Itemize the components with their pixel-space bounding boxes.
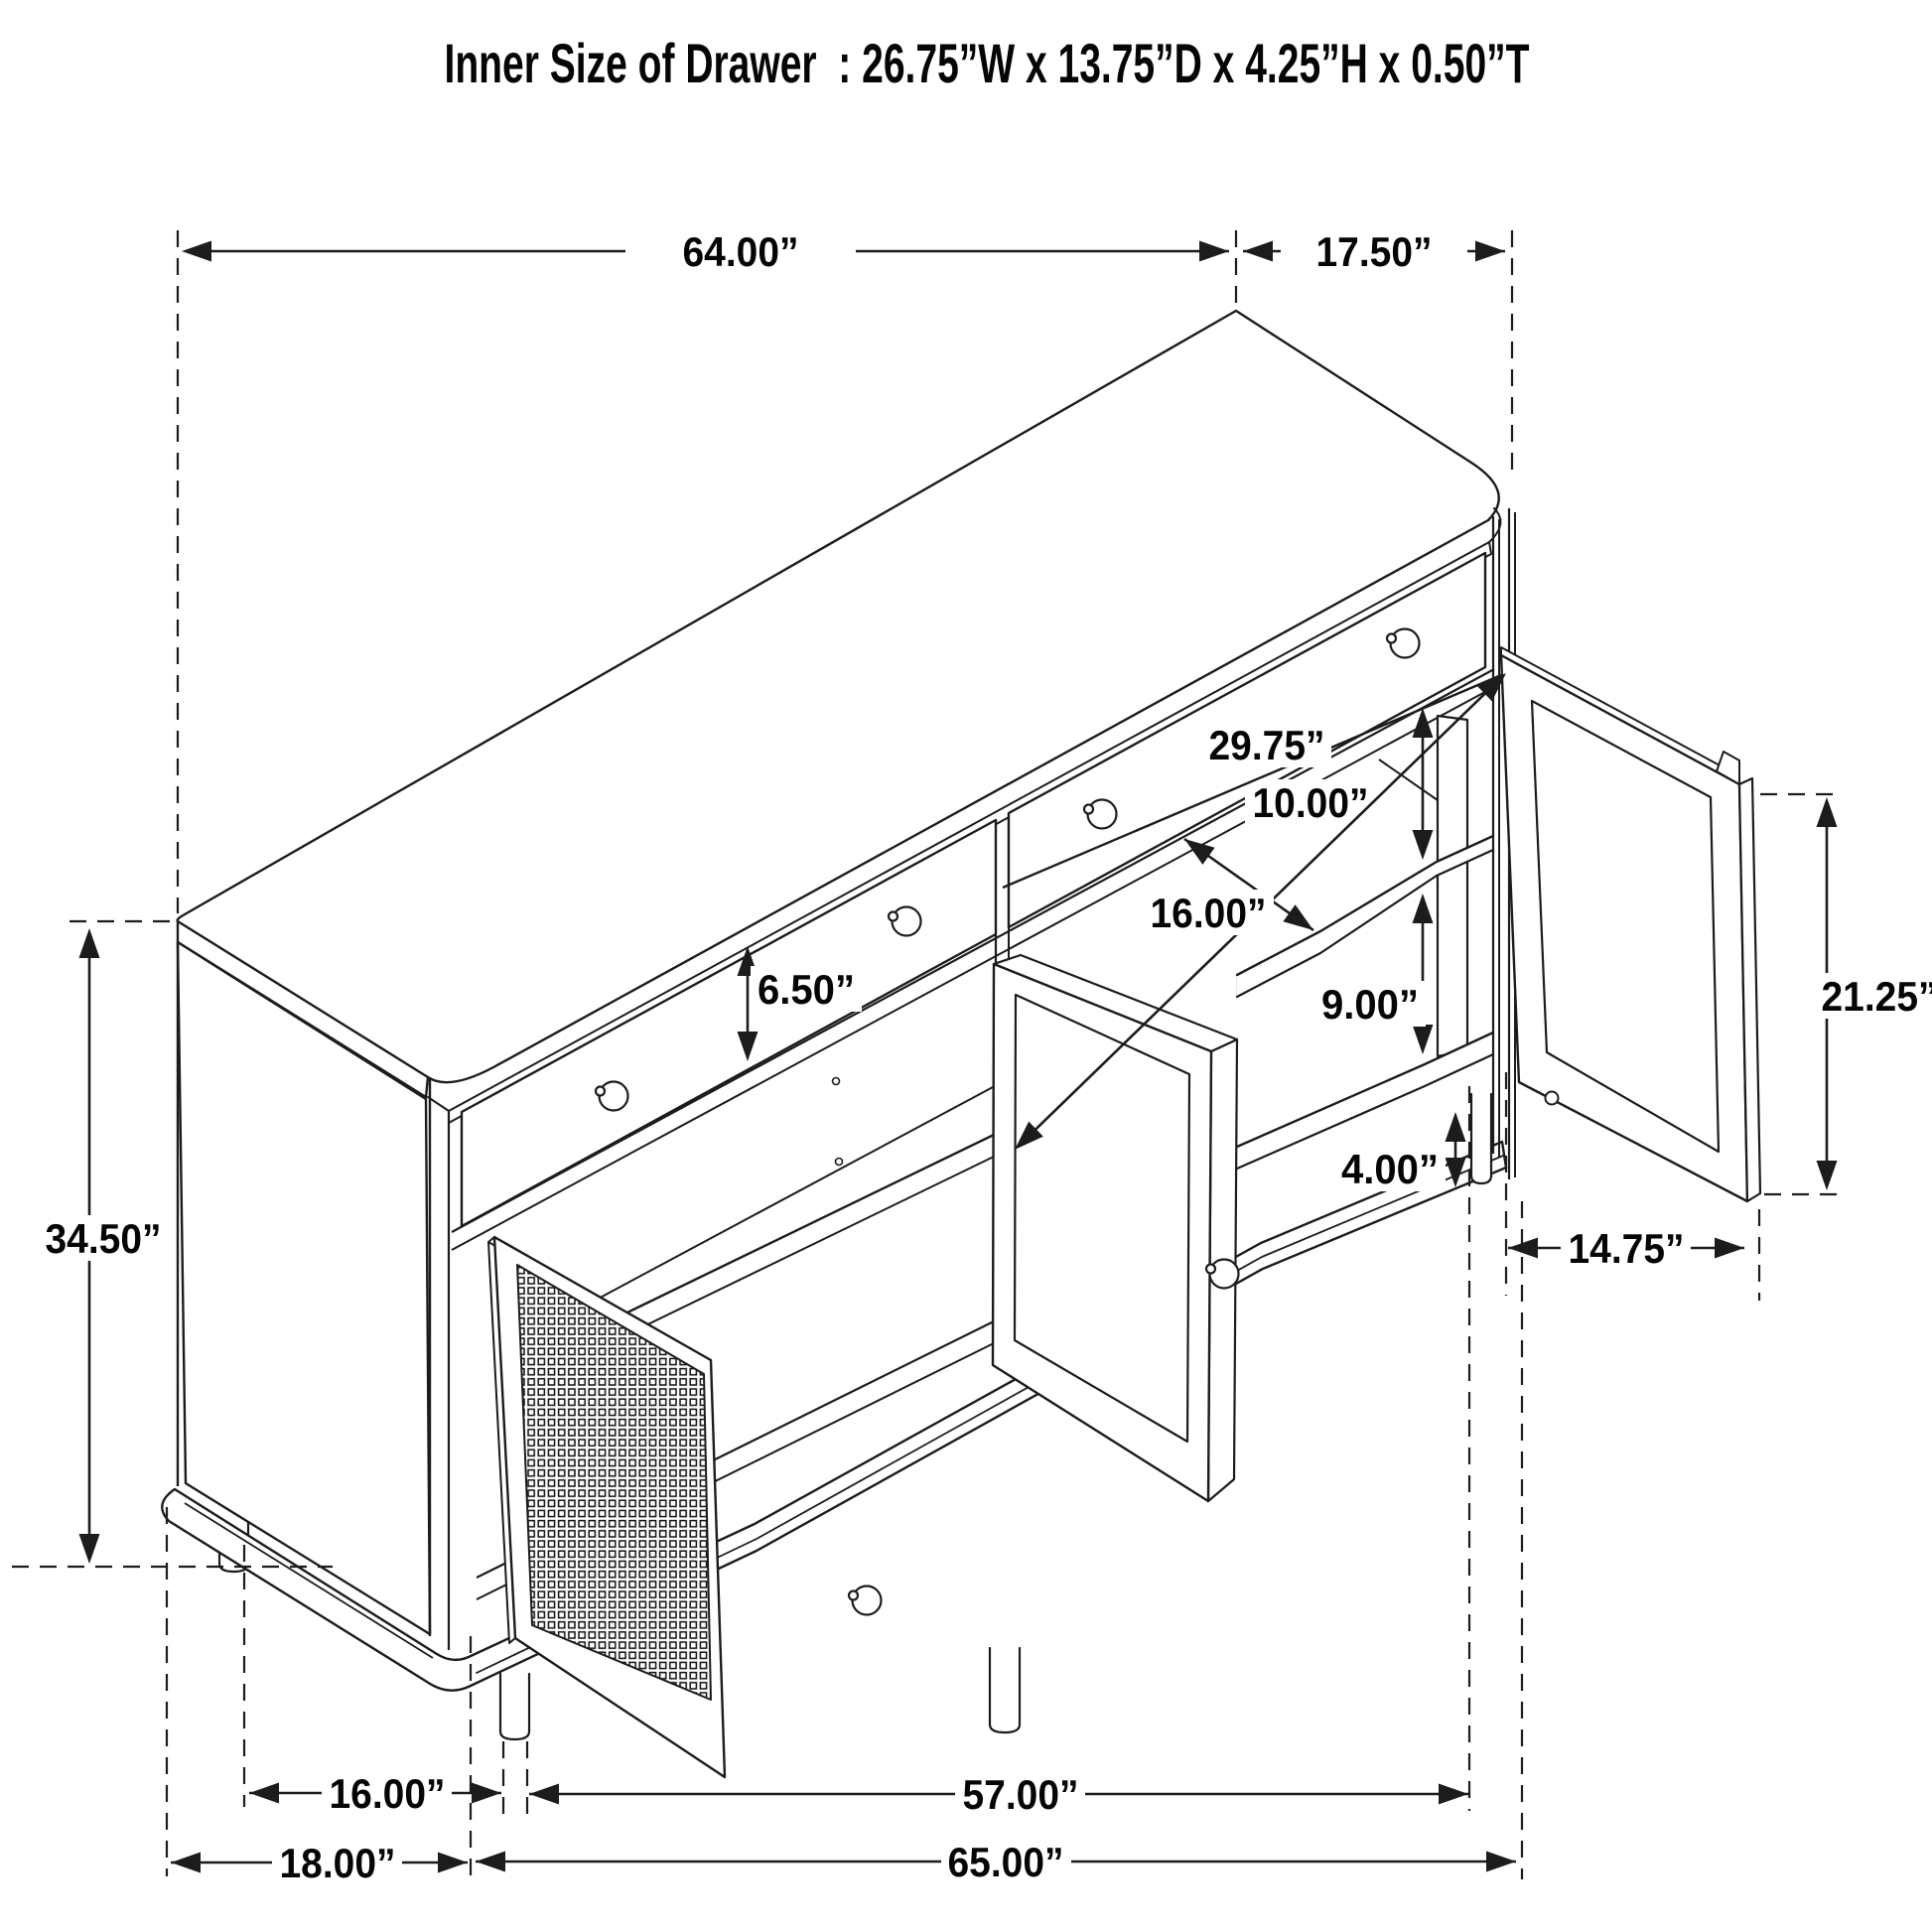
svg-text:21.25”: 21.25” [1822, 973, 1932, 1020]
svg-text:6.50”: 6.50” [758, 966, 855, 1013]
svg-text:14.75”: 14.75” [1569, 1225, 1685, 1272]
svg-text:16.00”: 16.00” [330, 1770, 446, 1817]
svg-text:4.00”: 4.00” [1341, 1146, 1439, 1192]
svg-text:Inner Size of Drawer : 26.75”: Inner Size of Drawer : 26.75”W x 13.75”D… [445, 32, 1530, 94]
svg-text:64.00”: 64.00” [683, 228, 799, 275]
svg-text:18.00”: 18.00” [280, 1840, 396, 1886]
svg-text:29.75”: 29.75” [1209, 722, 1325, 768]
svg-text:65.00”: 65.00” [948, 1839, 1064, 1885]
svg-text:16.00”: 16.00” [1151, 890, 1267, 936]
svg-text:57.00”: 57.00” [963, 1771, 1079, 1818]
svg-text:17.50”: 17.50” [1316, 228, 1433, 275]
svg-text:9.00”: 9.00” [1321, 981, 1419, 1028]
svg-text:10.00”: 10.00” [1253, 779, 1369, 826]
svg-text:34.50”: 34.50” [46, 1215, 162, 1262]
